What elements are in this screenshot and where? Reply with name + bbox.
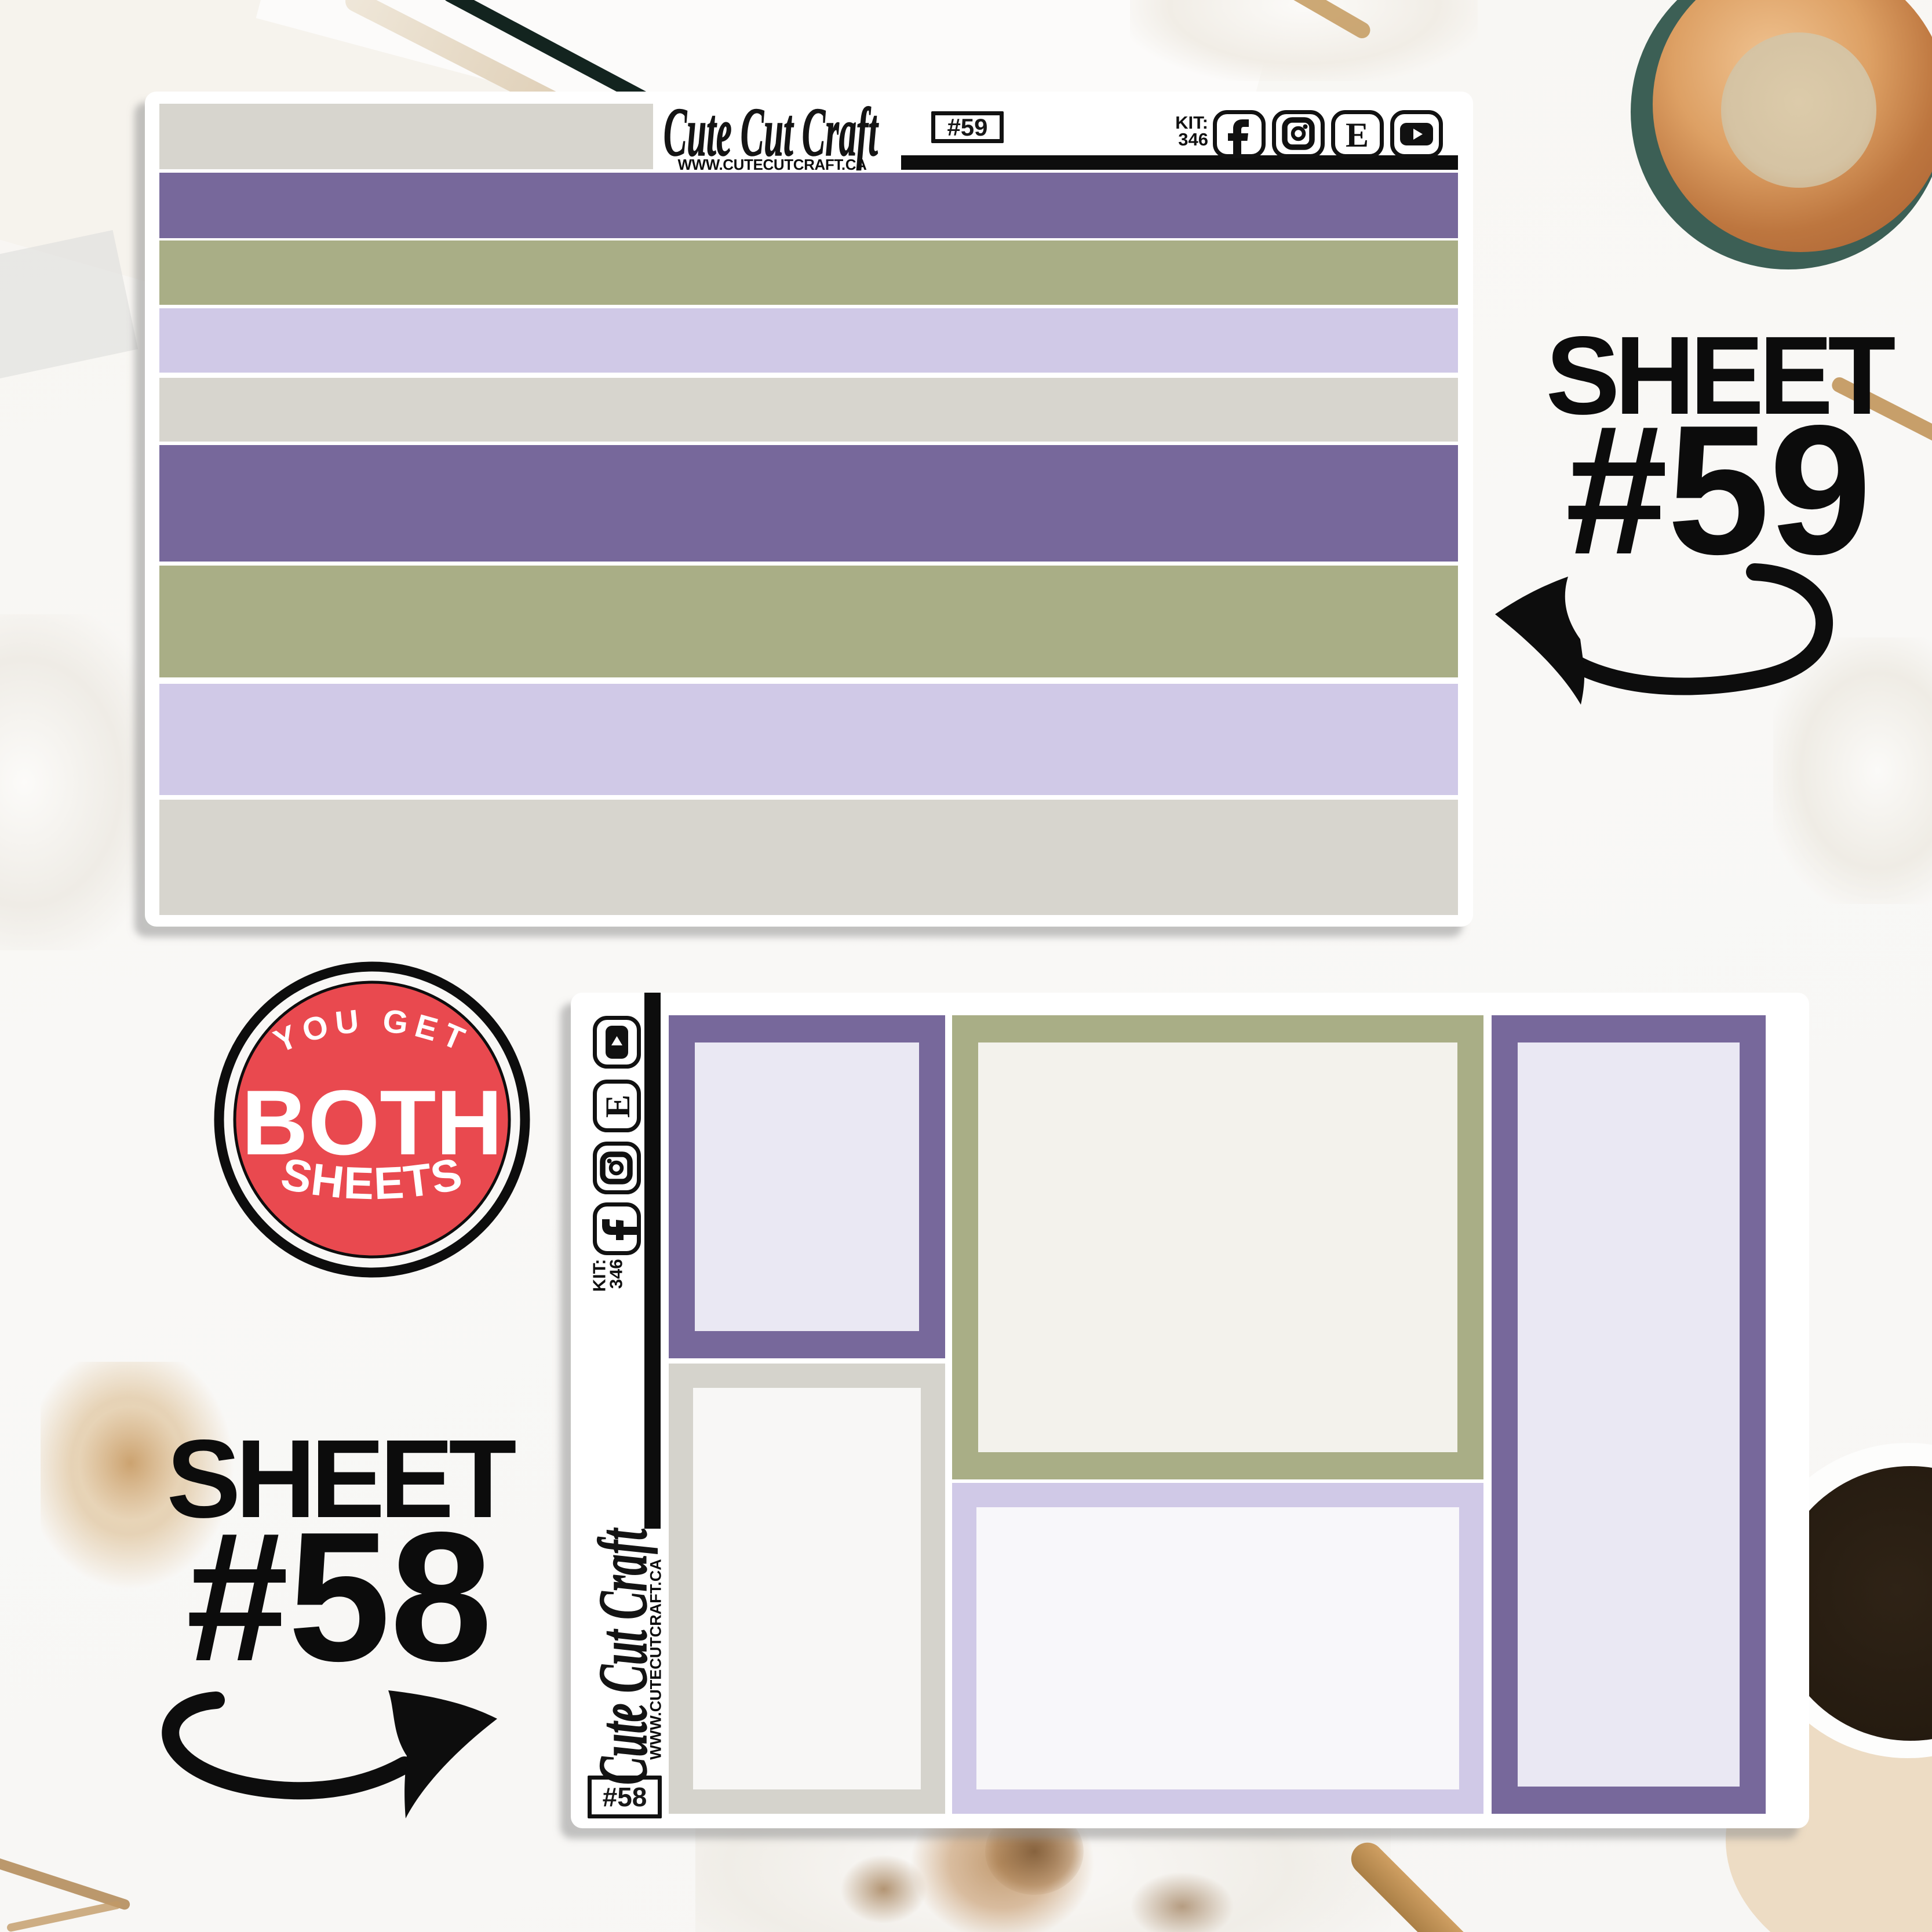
svg-text:E: E — [1346, 116, 1369, 154]
svg-text:E: E — [599, 1095, 637, 1118]
